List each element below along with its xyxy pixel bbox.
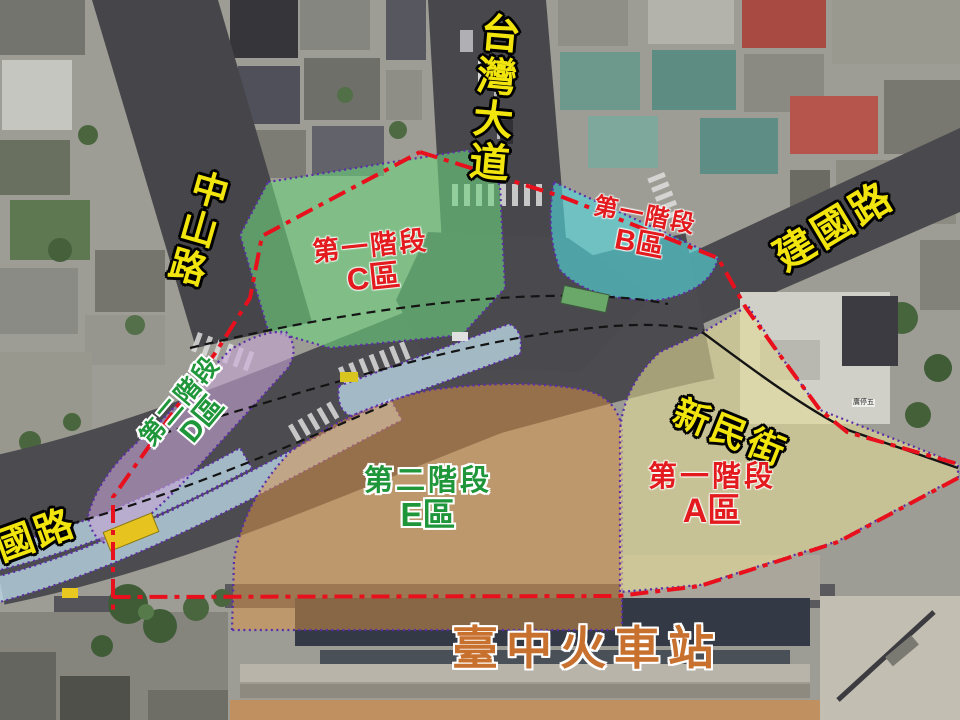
zone-c [240, 150, 505, 348]
aerial-phasing-map: 台灣大道 中山路 建國路 國路 新民街 臺中火車站 第一階段 C區 第一階段 B… [0, 0, 960, 720]
map-canvas [0, 0, 960, 720]
